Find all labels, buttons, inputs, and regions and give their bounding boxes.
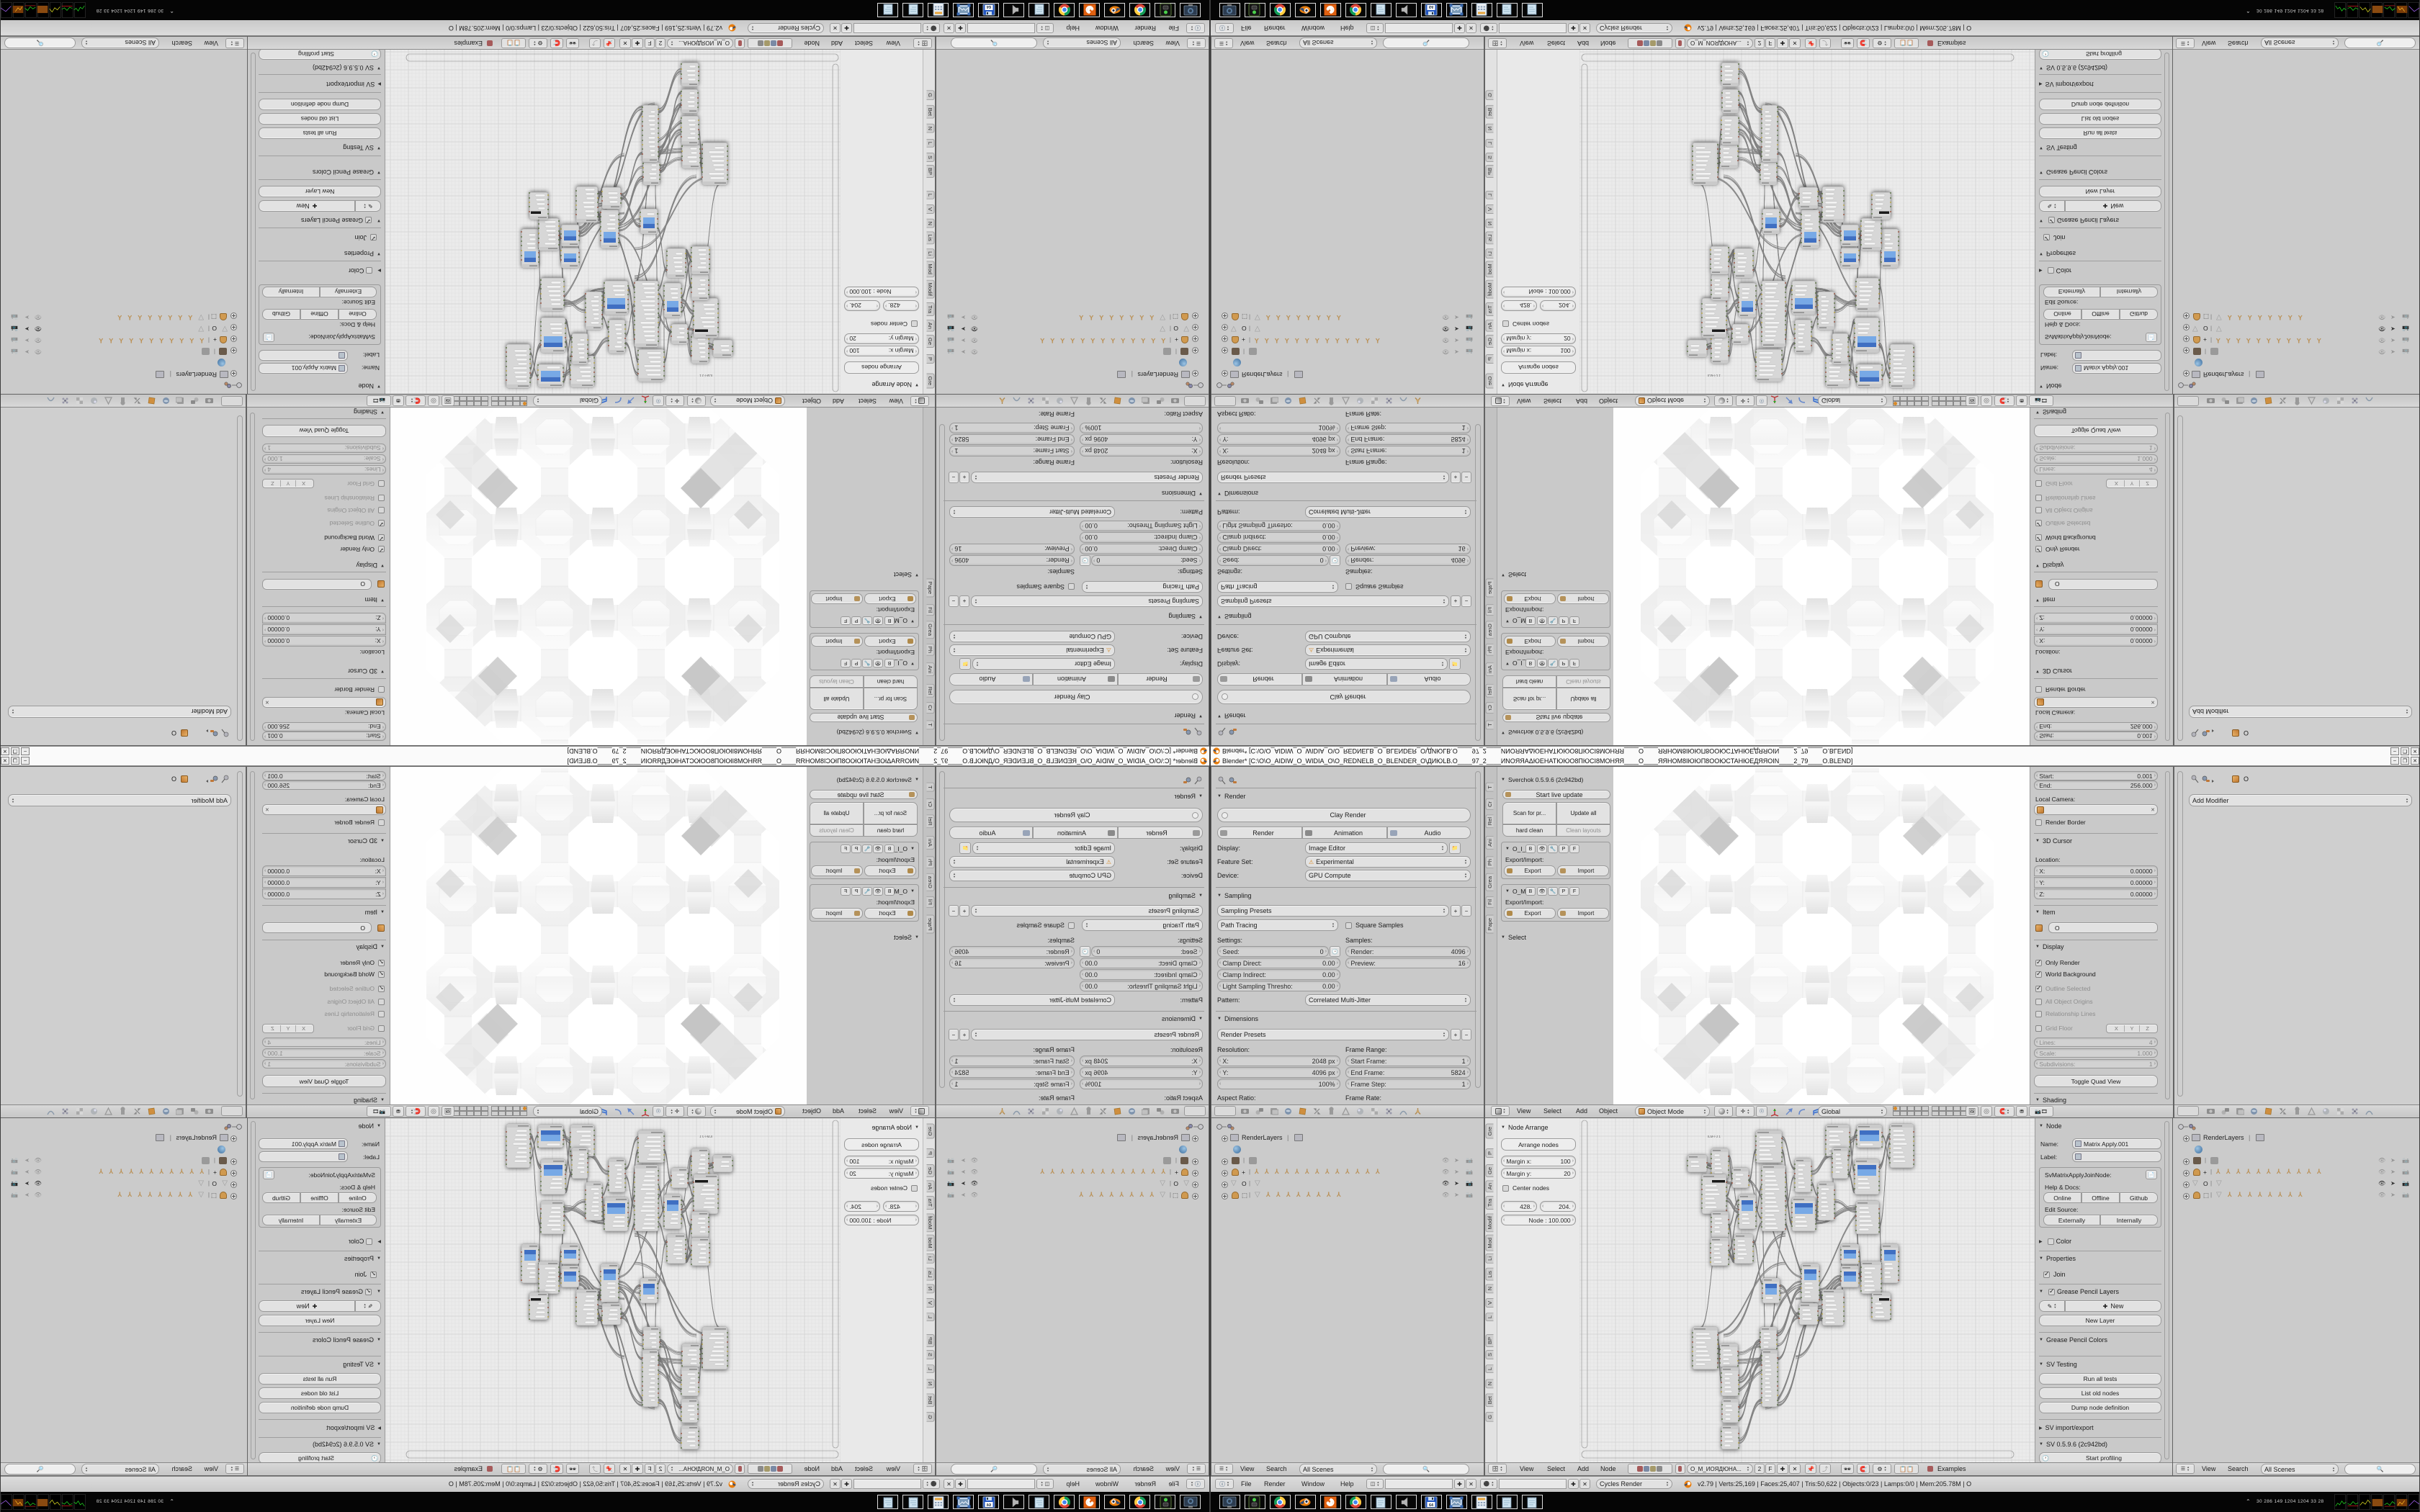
svg-text:ILM-/-J 1: ILM-/-J 1 [1708, 1135, 1721, 1138]
svg-text:64: 64 [1429, 1503, 1434, 1508]
